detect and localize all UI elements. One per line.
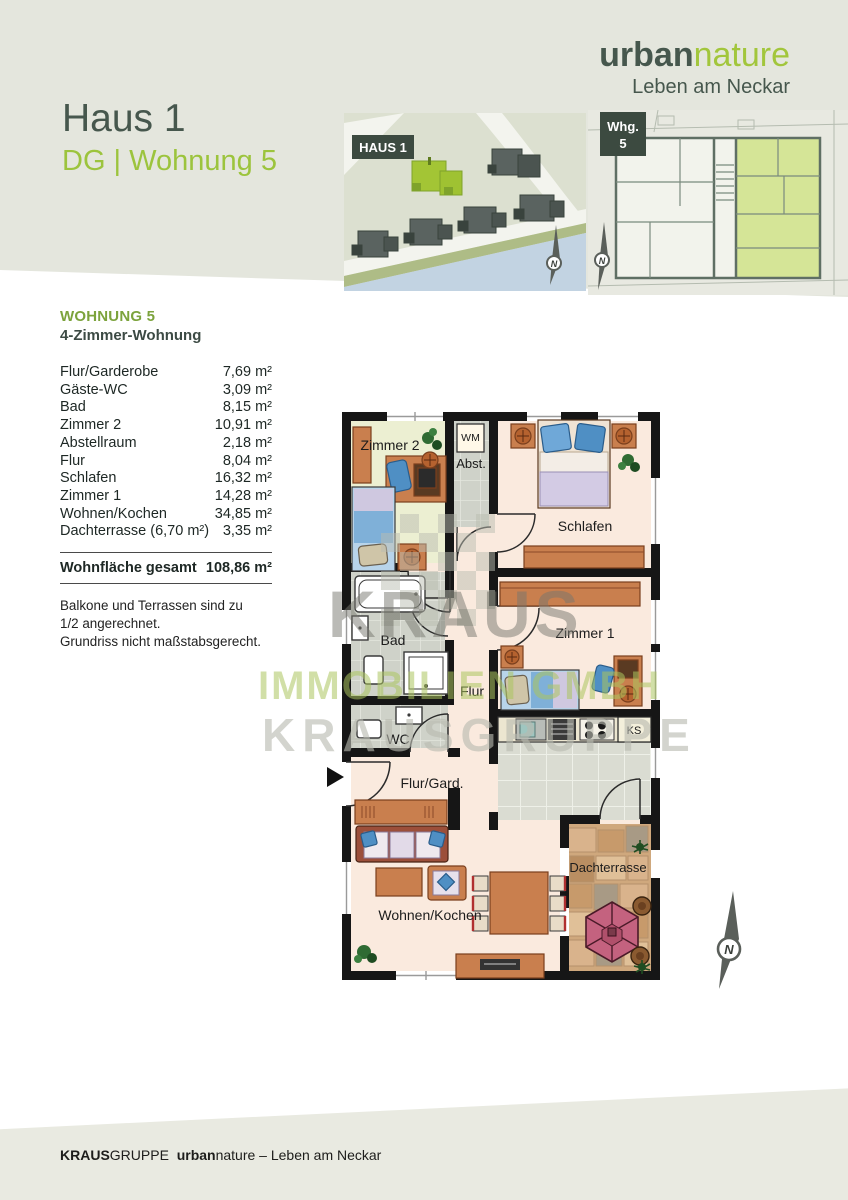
key-plan-left bbox=[616, 138, 736, 278]
total-row: Wohnfläche gesamt 108,86 m² bbox=[60, 552, 272, 584]
washing-machine: WM bbox=[457, 424, 484, 452]
key-plan-label: Whg. 5 bbox=[600, 112, 646, 156]
table-row: Flur/Garderobe7,69 m² bbox=[60, 364, 272, 382]
floor-plan: WM bbox=[325, 403, 675, 1003]
north-arrow: N bbox=[703, 885, 751, 1010]
label-schlafen: Schlafen bbox=[558, 518, 612, 534]
table-row: Dachterrasse (6,70 m²)3,35 m² bbox=[60, 523, 272, 541]
tv-board bbox=[456, 954, 544, 978]
key-north-label: N bbox=[599, 256, 606, 266]
nightstand-zimmer1 bbox=[501, 646, 523, 668]
page-title: Haus 1 bbox=[62, 98, 277, 141]
desk-zimmer1 bbox=[614, 656, 642, 706]
info-subheading: 4-Zimmer-Wohnung bbox=[60, 327, 272, 344]
table-row: Bad8,15 m² bbox=[60, 399, 272, 417]
page-subtitle: DG | Wohnung 5 bbox=[62, 145, 277, 178]
label-dachterrasse: Dachterrasse bbox=[569, 860, 646, 875]
kitchen: KS bbox=[498, 717, 651, 742]
footer-nature: nature – Leben am Neckar bbox=[216, 1147, 382, 1163]
wardrobe-schlafen bbox=[524, 546, 644, 568]
room-table: Flur/Garderobe7,69 m² Gäste-WC3,09 m² Ba… bbox=[60, 364, 272, 541]
coffee-table bbox=[376, 868, 422, 896]
site-label-text: HAUS 1 bbox=[359, 140, 407, 155]
table-row: Zimmer 210,91 m² bbox=[60, 417, 272, 435]
table-row: Flur8,04 m² bbox=[60, 453, 272, 471]
site-north-label: N bbox=[551, 259, 558, 269]
info-heading: WOHNUNG 5 bbox=[60, 308, 272, 325]
logo-nature: nature bbox=[694, 36, 790, 74]
nightstand-left bbox=[511, 424, 535, 448]
toilet-bad bbox=[364, 656, 383, 684]
shelf bbox=[353, 427, 371, 483]
brand-logo: urbannature Leben am Neckar bbox=[599, 38, 790, 98]
sideboard bbox=[355, 800, 447, 824]
bed-zimmer2 bbox=[352, 487, 395, 571]
north-label: N bbox=[724, 942, 734, 957]
nightstand-zimmer2 bbox=[398, 544, 426, 570]
logo-tagline: Leben am Neckar bbox=[599, 77, 790, 98]
key-label-line1: Whg. bbox=[607, 119, 639, 134]
table-row: Wohnen/Kochen34,85 m² bbox=[60, 506, 272, 524]
label-flur: Flur bbox=[460, 683, 484, 699]
nightstand-right bbox=[612, 424, 636, 448]
wm-label: WM bbox=[461, 432, 480, 444]
total-label: Wohnfläche gesamt bbox=[60, 560, 197, 576]
footnotes: Balkone und Terrassen sind zu 1/2 angere… bbox=[60, 597, 272, 651]
label-zimmer2: Zimmer 2 bbox=[360, 437, 419, 453]
label-flurgard: Flur/Gard. bbox=[400, 775, 463, 791]
wc-toilet bbox=[357, 720, 381, 738]
title-block: Haus 1 DG | Wohnung 5 bbox=[62, 98, 277, 178]
double-bed bbox=[538, 420, 610, 508]
site-plan-image: HAUS 1 N bbox=[344, 113, 586, 291]
table-row: Schlafen16,32 m² bbox=[60, 470, 272, 488]
armchair bbox=[428, 866, 466, 900]
footer-text: KRAUSGRUPPE urbannature – Leben am Necka… bbox=[60, 1147, 381, 1163]
expose-page: urbannature Leben am Neckar Haus 1 DG | … bbox=[0, 0, 848, 1200]
stove bbox=[580, 719, 614, 740]
label-abst: Abst. bbox=[456, 456, 486, 471]
ks-label: KS bbox=[627, 725, 642, 737]
sofa bbox=[356, 826, 448, 862]
logo-urban: urban bbox=[599, 36, 693, 74]
footer-gruppe: GRUPPE bbox=[110, 1147, 169, 1163]
label-zimmer1: Zimmer 1 bbox=[555, 625, 614, 641]
footer-band bbox=[0, 1080, 848, 1200]
key-label-line2: 5 bbox=[619, 136, 626, 151]
info-panel: WOHNUNG 5 4-Zimmer-Wohnung Flur/Garderob… bbox=[60, 308, 272, 651]
table-row: Gäste-WC3,09 m² bbox=[60, 382, 272, 400]
bed-zimmer1 bbox=[501, 670, 579, 710]
site-plan-label: HAUS 1 bbox=[352, 135, 414, 159]
label-wc: WC bbox=[386, 731, 409, 747]
wardrobe-zimmer1 bbox=[500, 582, 640, 606]
label-wohnen: Wohnen/Kochen bbox=[378, 907, 481, 923]
fridge: KS bbox=[618, 717, 651, 742]
footer-kraus: KRAUS bbox=[60, 1147, 110, 1163]
label-bad: Bad bbox=[381, 632, 406, 648]
dining-table bbox=[473, 872, 565, 934]
table-row: Zimmer 114,28 m² bbox=[60, 488, 272, 506]
entry-arrow bbox=[327, 767, 344, 787]
table-row: Abstellraum2,18 m² bbox=[60, 435, 272, 453]
key-plan-image: Whg. 5 N bbox=[588, 110, 848, 295]
footer-urban: urban bbox=[177, 1147, 216, 1163]
total-value: 108,86 m² bbox=[206, 560, 272, 576]
